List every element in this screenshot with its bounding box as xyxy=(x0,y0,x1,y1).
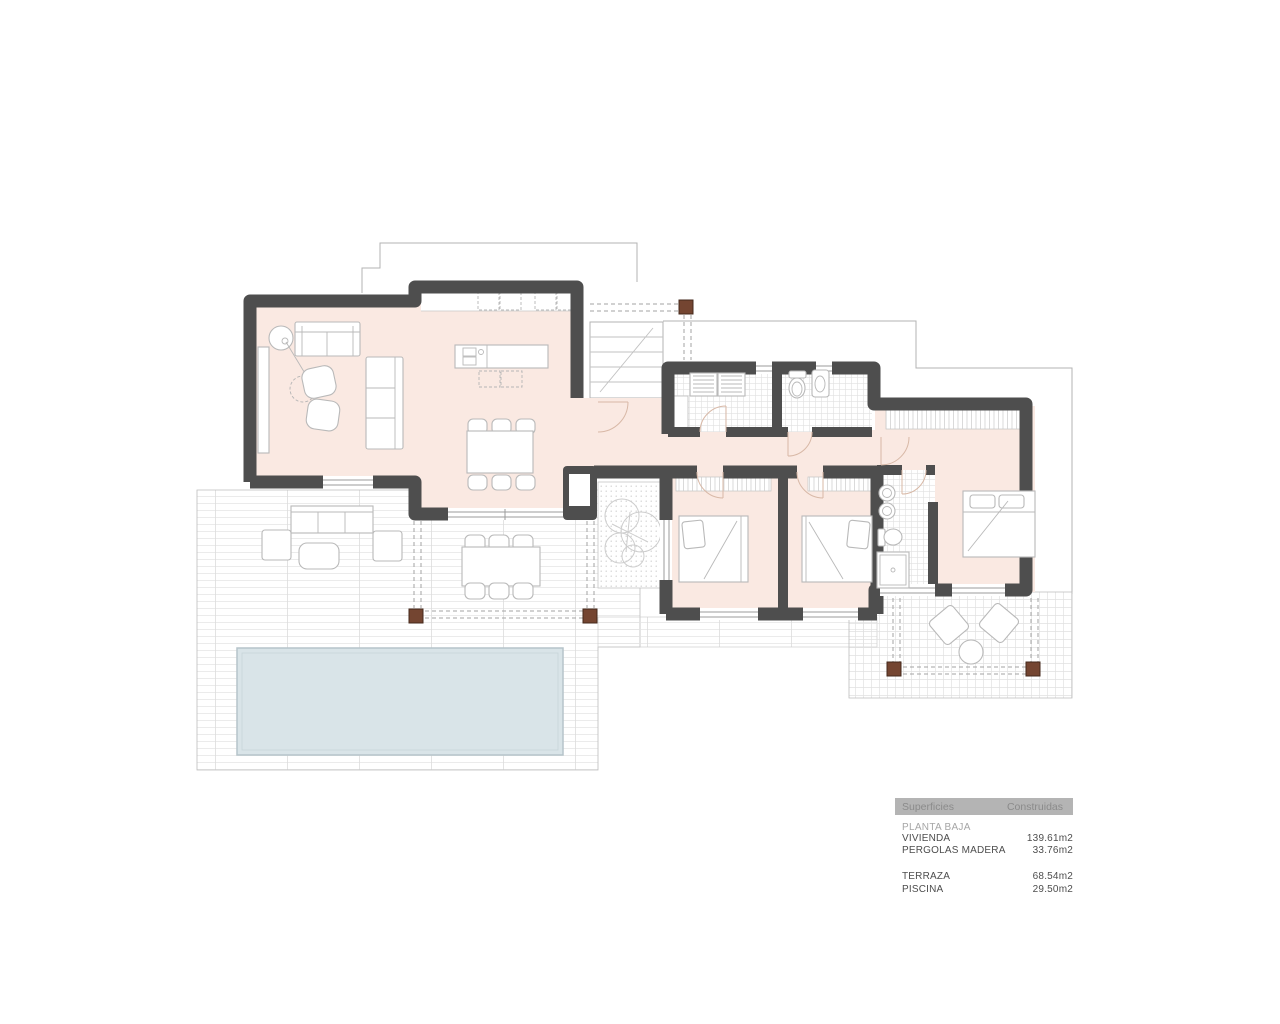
chair xyxy=(468,475,487,490)
outdoor-dining xyxy=(462,535,540,599)
sink-icon xyxy=(812,370,829,397)
pergola-post-icon xyxy=(679,300,693,314)
window xyxy=(700,608,758,620)
chair xyxy=(492,475,511,490)
chair xyxy=(465,583,485,599)
armchair xyxy=(305,398,341,432)
pergola-post-icon xyxy=(583,609,597,623)
pillow xyxy=(847,520,871,549)
window xyxy=(756,362,772,374)
coffee-table xyxy=(299,543,339,569)
areas-table-header: Superficies Construidas xyxy=(895,798,1073,815)
area-row-terraza: TERRAZA 68.54m2 xyxy=(895,871,1073,883)
toilet-icon xyxy=(789,371,806,398)
pillow xyxy=(999,495,1024,508)
sofa xyxy=(295,322,360,356)
closet-master xyxy=(886,410,1028,429)
area-row-piscina: PISCINA 29.50m2 xyxy=(895,884,1073,896)
area-row-pergolas: PERGOLAS MADERA 33.76m2 xyxy=(895,845,1073,857)
tree-patio xyxy=(598,482,663,588)
pergola-entry xyxy=(590,300,693,360)
window xyxy=(952,584,1005,596)
floor-title: PLANTA BAJA xyxy=(895,822,1073,833)
armchair xyxy=(373,531,402,561)
area-row-vivienda: VIVIENDA 139.61m2 xyxy=(895,833,1073,845)
armchair xyxy=(262,530,291,560)
areas-header-col2: Construidas xyxy=(1007,801,1063,813)
terrace-strip xyxy=(598,617,877,647)
sideboard xyxy=(258,347,269,453)
bed xyxy=(802,516,872,582)
dryer-icon xyxy=(718,373,745,396)
closet-bedroom2 xyxy=(808,477,874,491)
entry-floor xyxy=(573,398,668,468)
washer-icon xyxy=(690,373,717,396)
round-table xyxy=(959,640,983,664)
sofa xyxy=(366,357,403,449)
shower-icon xyxy=(877,552,909,588)
chair xyxy=(516,475,535,490)
areas-table: Superficies Construidas PLANTA BAJA VIVI… xyxy=(895,798,1073,896)
pillow xyxy=(682,520,706,549)
kitchen-counter xyxy=(421,293,573,311)
floor-plan-page: Superficies Construidas PLANTA BAJA VIVI… xyxy=(0,0,1280,1024)
dining-table-indoor xyxy=(467,419,535,490)
entrance-stairs xyxy=(590,322,663,398)
pergola-post-icon xyxy=(1026,662,1040,676)
sliding-door xyxy=(448,508,563,520)
swimming-pool xyxy=(237,648,563,755)
window xyxy=(803,608,858,620)
floor-plan-drawing xyxy=(0,0,1280,1024)
chair xyxy=(489,583,509,599)
bed-master xyxy=(963,491,1035,557)
window xyxy=(323,476,373,488)
chair xyxy=(513,583,533,599)
toilet-icon xyxy=(878,529,902,546)
pergola-post-icon xyxy=(887,662,901,676)
bed xyxy=(679,516,748,582)
window xyxy=(660,520,672,580)
areas-header-col1: Superficies xyxy=(902,801,954,813)
pergola-post-icon xyxy=(409,609,423,623)
pillow xyxy=(970,495,995,508)
